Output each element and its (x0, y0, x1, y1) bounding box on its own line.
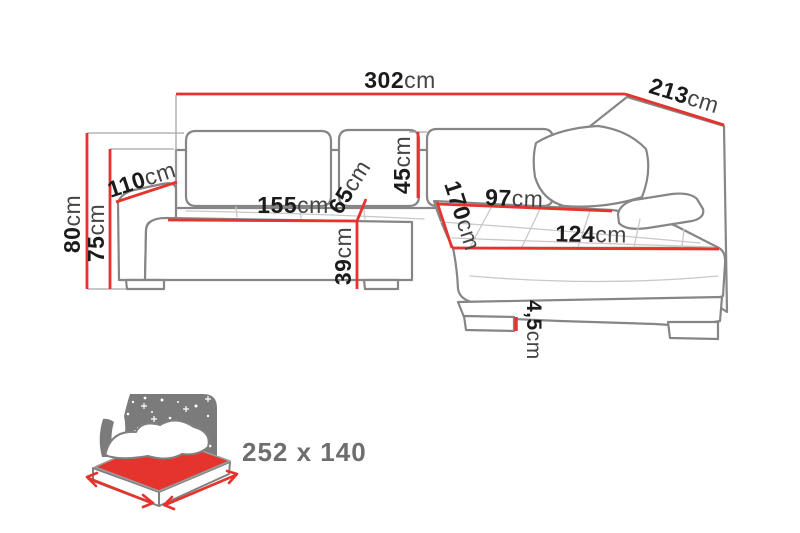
dim-label-chaise-back-width: 97cm (485, 184, 544, 212)
dim-label-seat-height: 39cm (330, 227, 356, 285)
dim-label-armrest-height: 75cm (83, 204, 109, 262)
dim-line-chaise-front-width (452, 248, 719, 249)
dim-label-seat-width: 155cm (257, 192, 329, 218)
chaise-front-leg (464, 316, 514, 331)
dim-label-chaise-front-width: 124cm (555, 220, 627, 247)
sleeper-bed-icon: 252 x 140 (87, 394, 367, 509)
corner-pillow (534, 126, 649, 207)
left-front-leg (126, 280, 164, 289)
bed-duvet (106, 420, 209, 458)
chaise-right-leg (668, 322, 718, 339)
dim-line-seat-width (168, 220, 357, 221)
dim-label-back-cushion-height: 45cm (389, 136, 415, 194)
sofa-dimension-diagram: 302cm 213cm 80cm 75cm 110cm 155cm 65cm 4… (0, 0, 800, 533)
dim-label-back-height: 80cm (59, 195, 85, 253)
left-inner-leg (364, 280, 398, 289)
dim-label-total-width: 302cm (364, 67, 436, 93)
sleeping-area-label: 252 x 140 (242, 437, 367, 467)
dim-label-leg-height: 4,5cm (522, 300, 545, 360)
left-seat (145, 218, 412, 280)
sofa-illustration (118, 97, 727, 339)
